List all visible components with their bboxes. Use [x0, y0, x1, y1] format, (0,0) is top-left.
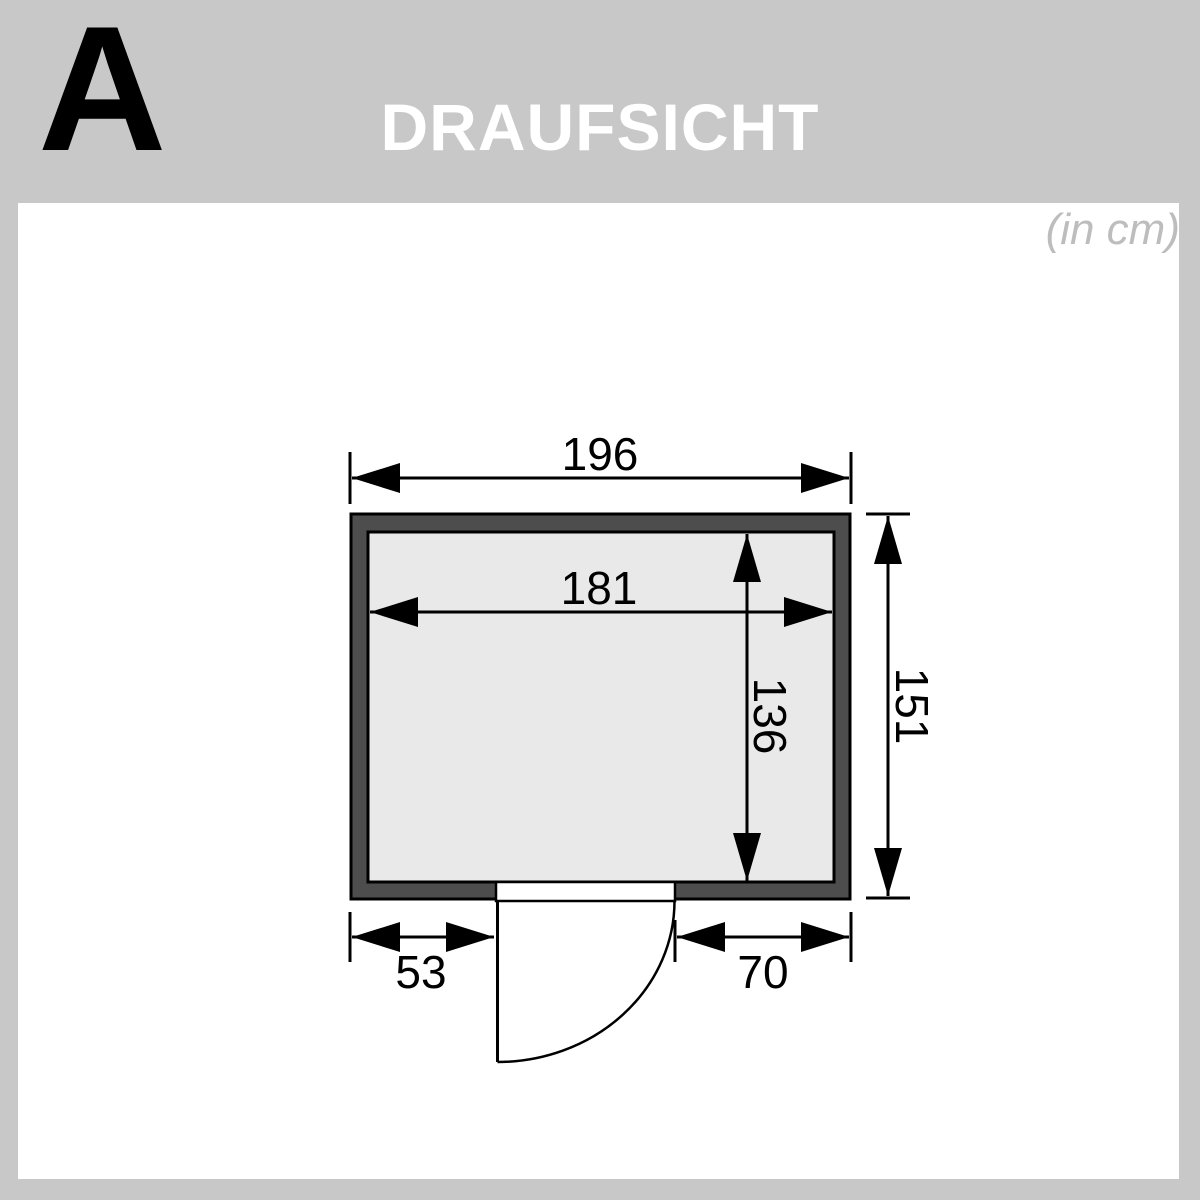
arrow-left-icon: [352, 922, 400, 952]
dim-inner-width-label: 181: [561, 562, 638, 614]
dim-inner-depth-label: 136: [744, 678, 796, 755]
arrow-down-icon: [874, 848, 902, 896]
door-swing-arc: [498, 901, 675, 1062]
dim-door-offset-right-label: 70: [737, 946, 788, 998]
dim-outer-width: 196: [350, 428, 851, 504]
arrow-left-icon: [677, 922, 725, 952]
dim-door-offset-right: 70: [675, 912, 851, 998]
dim-outer-width-label: 196: [562, 428, 639, 480]
floor-plan-drawing: 196 151 181 136: [0, 0, 1200, 1200]
dim-door-offset-left: 53: [350, 912, 494, 998]
arrow-right-icon: [801, 463, 849, 493]
dim-outer-depth: 151: [866, 514, 938, 898]
dim-outer-depth-label: 151: [886, 668, 938, 745]
arrow-up-icon: [874, 516, 902, 564]
arrow-right-icon: [801, 922, 849, 952]
arrow-right-icon: [446, 922, 494, 952]
dim-door-offset-left-label: 53: [395, 946, 446, 998]
door: [496, 882, 675, 1062]
door-opening: [496, 882, 675, 901]
page: A DRAUFSICHT (in cm) 196 151: [0, 0, 1200, 1200]
arrow-left-icon: [352, 463, 400, 493]
